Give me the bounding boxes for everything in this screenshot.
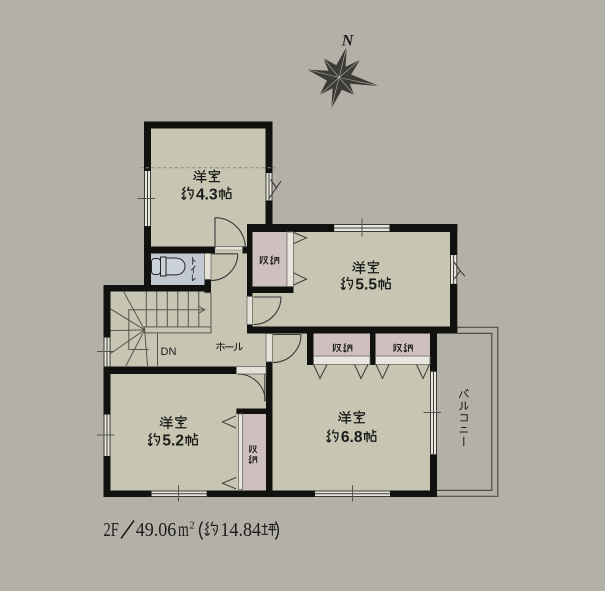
svg-text:2F: 2F bbox=[104, 519, 119, 541]
svg-text:5.2: 5.2 bbox=[162, 433, 184, 450]
svg-text:2: 2 bbox=[189, 520, 195, 532]
svg-text:4.3: 4.3 bbox=[196, 186, 218, 203]
svg-text:14.84: 14.84 bbox=[220, 519, 261, 541]
svg-text:49.06: 49.06 bbox=[136, 519, 177, 541]
svg-text:m: m bbox=[178, 519, 189, 541]
svg-text:6.8: 6.8 bbox=[341, 429, 363, 446]
svg-text:DN: DN bbox=[161, 346, 177, 358]
svg-text:N: N bbox=[341, 33, 355, 50]
svg-text:5.5: 5.5 bbox=[355, 277, 377, 294]
